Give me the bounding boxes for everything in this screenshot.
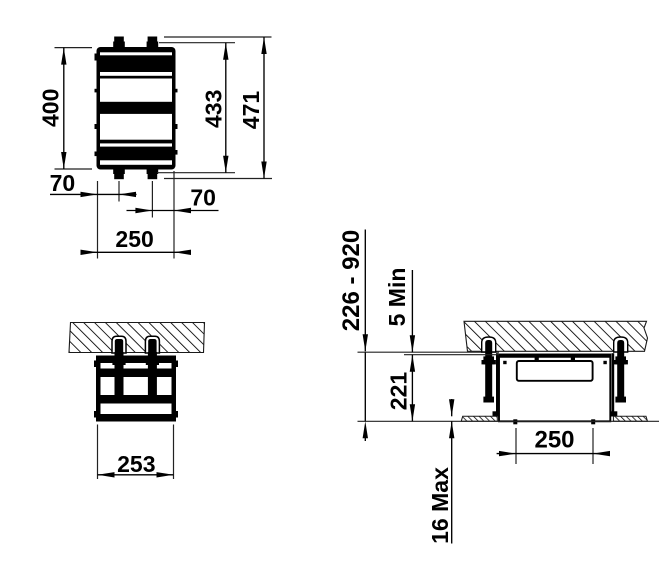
svg-text:70: 70 — [190, 185, 216, 211]
svg-text:250: 250 — [115, 226, 153, 252]
svg-text:226 - 920: 226 - 920 — [338, 230, 365, 331]
svg-text:250: 250 — [534, 427, 574, 454]
svg-text:471: 471 — [238, 91, 264, 130]
svg-text:400: 400 — [38, 89, 64, 127]
svg-text:253: 253 — [117, 451, 155, 477]
svg-text:70: 70 — [50, 170, 76, 196]
svg-text:221: 221 — [385, 372, 411, 411]
svg-text:5 Min: 5 Min — [384, 268, 410, 327]
svg-text:433: 433 — [201, 90, 227, 128]
svg-text:16 Max: 16 Max — [427, 467, 453, 544]
